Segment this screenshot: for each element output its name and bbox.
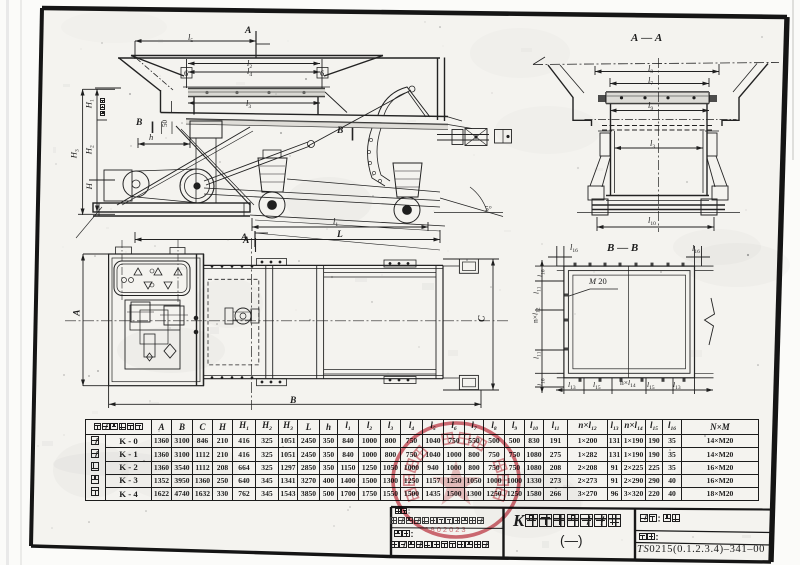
svg-text:3802023: 3802023 bbox=[424, 525, 467, 534]
